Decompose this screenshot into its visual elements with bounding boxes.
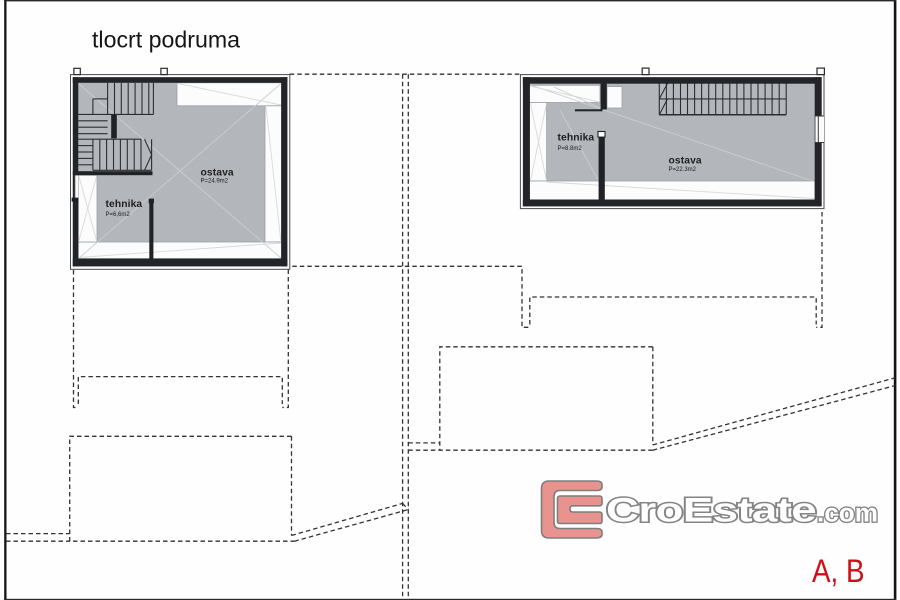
svg-text:P=24.9m2: P=24.9m2 xyxy=(201,179,229,185)
svg-text:A, B: A, B xyxy=(812,553,865,589)
svg-text:tlocrt podruma: tlocrt podruma xyxy=(92,27,241,53)
svg-text:ostava: ostava xyxy=(669,156,702,167)
svg-text:tehnika: tehnika xyxy=(558,133,595,144)
svg-text:P=8.8m2: P=8.8m2 xyxy=(558,146,583,152)
svg-text:.com: .com xyxy=(817,498,878,528)
svg-text:CroEstate: CroEstate xyxy=(606,492,816,530)
svg-text:ostava: ostava xyxy=(201,168,234,179)
svg-text:P=6,6m2: P=6,6m2 xyxy=(106,212,131,218)
svg-text:tehnika: tehnika xyxy=(106,199,143,210)
svg-text:P=22.3m2: P=22.3m2 xyxy=(669,167,697,173)
